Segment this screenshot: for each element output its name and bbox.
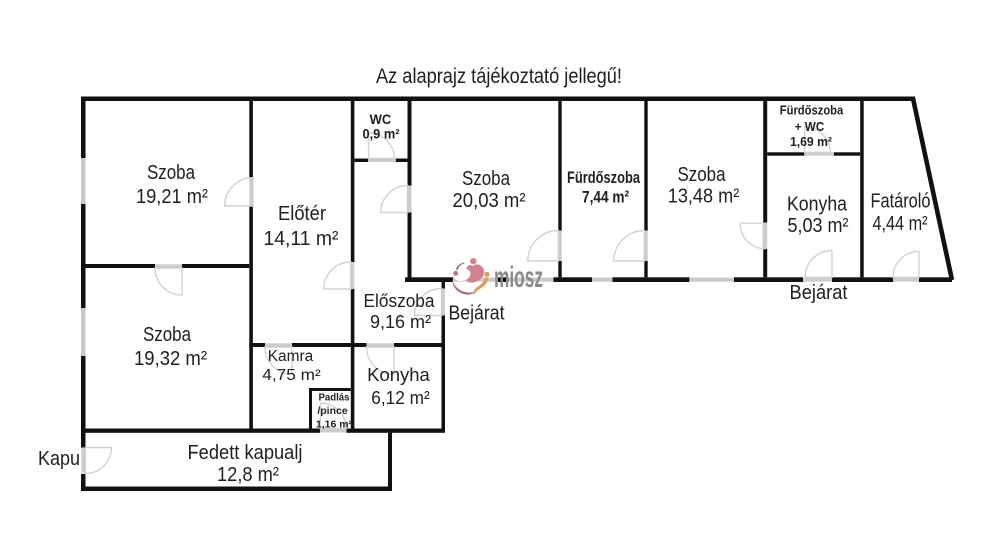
svg-text:13,48 m²: 13,48 m² (668, 185, 740, 208)
svg-text:6,12 m²: 6,12 m² (371, 387, 430, 408)
svg-text:14,11 m²: 14,11 m² (264, 227, 339, 250)
svg-text:Szoba: Szoba (147, 161, 195, 184)
svg-text:Kapu: Kapu (38, 447, 80, 470)
svg-text:+ WC: + WC (795, 120, 825, 134)
svg-text:0,9 m²: 0,9 m² (363, 126, 400, 142)
svg-text:19,21 m²: 19,21 m² (136, 185, 208, 208)
svg-text:4,44 m²: 4,44 m² (873, 212, 928, 235)
svg-text:miosz: miosz (494, 261, 543, 294)
svg-text:20,03 m²: 20,03 m² (453, 189, 526, 212)
svg-text:Szoba: Szoba (143, 323, 191, 346)
svg-text:Fürdőszoba: Fürdőszoba (567, 169, 641, 187)
svg-text:Előszoba: Előszoba (364, 290, 436, 311)
svg-text:5,03 m²: 5,03 m² (788, 214, 849, 237)
svg-text:19,32 m²: 19,32 m² (134, 347, 207, 370)
svg-text:12,8 m²: 12,8 m² (217, 463, 279, 486)
svg-text:Az alaprajz tájékoztató jelleg: Az alaprajz tájékoztató jellegű! (376, 64, 622, 88)
svg-text:Fürdőszoba: Fürdőszoba (780, 104, 844, 118)
svg-text:/pince: /pince (317, 405, 348, 417)
svg-text:Padlás: Padlás (319, 392, 350, 404)
svg-text:9,16 m²: 9,16 m² (370, 311, 431, 332)
svg-text:Szoba: Szoba (462, 167, 510, 190)
svg-text:Konyha: Konyha (787, 193, 848, 216)
svg-text:7,44 m²: 7,44 m² (582, 189, 629, 207)
svg-text:Bejárat: Bejárat (449, 302, 505, 325)
svg-text:Bejárat: Bejárat (790, 281, 848, 304)
svg-text:1,69 m²: 1,69 m² (790, 135, 832, 149)
svg-text:Fedett kapualj: Fedett kapualj (188, 441, 303, 464)
svg-text:Kamra: Kamra (268, 348, 314, 365)
svg-text:Fatároló: Fatároló (871, 190, 931, 213)
svg-text:Konyha: Konyha (367, 364, 430, 385)
svg-text:1,16 m²: 1,16 m² (316, 419, 353, 431)
svg-text:4,75 m²: 4,75 m² (262, 367, 320, 384)
svg-text:Előtér: Előtér (278, 202, 326, 225)
svg-text:Szoba: Szoba (678, 163, 726, 186)
